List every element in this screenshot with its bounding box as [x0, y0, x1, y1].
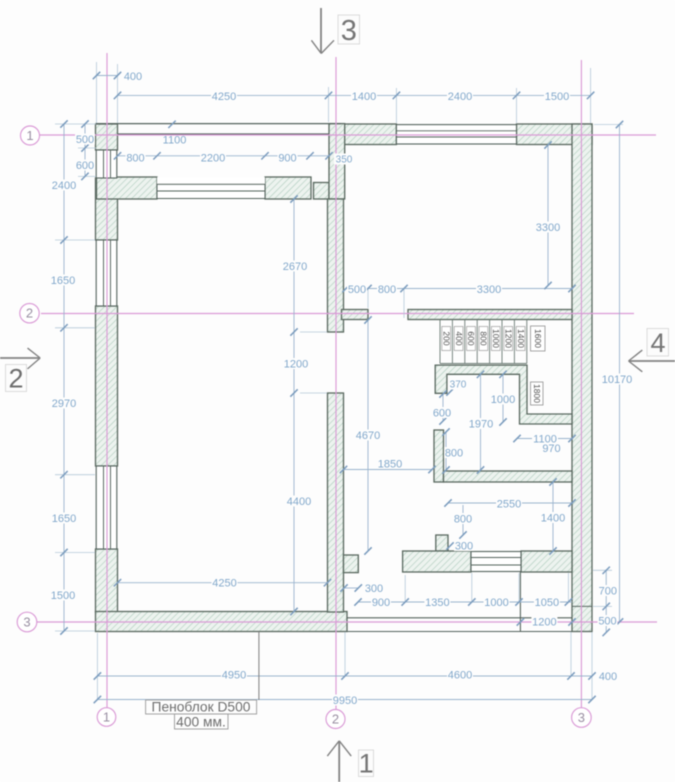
svg-text:1500: 1500 — [545, 91, 569, 103]
svg-text:300: 300 — [365, 583, 383, 595]
svg-text:2: 2 — [26, 306, 33, 321]
svg-text:800: 800 — [445, 447, 463, 459]
svg-text:1970: 1970 — [469, 418, 493, 430]
svg-text:4: 4 — [650, 328, 665, 358]
svg-text:3: 3 — [578, 710, 585, 725]
svg-text:4250: 4250 — [212, 91, 236, 103]
svg-text:500: 500 — [598, 615, 616, 627]
svg-text:2200: 2200 — [201, 153, 225, 165]
svg-text:1400: 1400 — [541, 512, 565, 524]
svg-text:1000: 1000 — [491, 394, 515, 406]
svg-text:2: 2 — [8, 364, 23, 394]
svg-text:400: 400 — [454, 331, 464, 345]
svg-text:1850: 1850 — [378, 459, 402, 471]
svg-text:800: 800 — [479, 331, 489, 345]
svg-text:3300: 3300 — [477, 284, 501, 296]
svg-text:970: 970 — [542, 443, 560, 455]
svg-text:600: 600 — [466, 331, 476, 345]
svg-text:600: 600 — [76, 160, 94, 172]
svg-text:1600: 1600 — [533, 329, 543, 348]
svg-text:700: 700 — [599, 585, 617, 597]
svg-text:300: 300 — [455, 540, 473, 552]
svg-text:2400: 2400 — [52, 180, 76, 192]
svg-text:10170: 10170 — [602, 374, 633, 386]
svg-text:1350: 1350 — [425, 597, 449, 609]
svg-text:900: 900 — [372, 597, 390, 609]
svg-text:1400: 1400 — [352, 91, 376, 103]
svg-text:4600: 4600 — [448, 669, 472, 681]
svg-text:800: 800 — [126, 153, 144, 165]
svg-text:1: 1 — [26, 128, 33, 143]
svg-text:900: 900 — [278, 153, 296, 165]
svg-text:800: 800 — [378, 284, 396, 296]
svg-text:1500: 1500 — [51, 590, 75, 602]
svg-text:1000: 1000 — [491, 329, 501, 348]
svg-text:1650: 1650 — [52, 513, 76, 525]
svg-text:500: 500 — [76, 134, 94, 146]
svg-text:1000: 1000 — [484, 597, 508, 609]
svg-text:1200: 1200 — [503, 329, 513, 348]
svg-text:350: 350 — [336, 155, 353, 166]
svg-text:2550: 2550 — [497, 498, 521, 510]
svg-text:4400: 4400 — [287, 496, 311, 508]
svg-text:600: 600 — [433, 407, 451, 419]
svg-text:370: 370 — [450, 379, 467, 390]
svg-text:1800: 1800 — [532, 384, 542, 403]
svg-text:500: 500 — [348, 284, 366, 296]
svg-text:400 мм.: 400 мм. — [176, 714, 226, 729]
svg-text:Пеноблок D500: Пеноблок D500 — [152, 699, 251, 714]
svg-text:1100: 1100 — [163, 134, 187, 146]
svg-text:9950: 9950 — [333, 695, 357, 707]
svg-text:400: 400 — [124, 71, 142, 83]
svg-text:2670: 2670 — [283, 261, 307, 273]
svg-text:4250: 4250 — [212, 578, 236, 590]
svg-text:1050: 1050 — [535, 597, 559, 609]
svg-text:1200: 1200 — [532, 616, 556, 628]
svg-text:200: 200 — [441, 331, 451, 345]
svg-text:1: 1 — [359, 749, 374, 779]
svg-text:2400: 2400 — [448, 91, 472, 103]
svg-text:3: 3 — [23, 615, 30, 630]
svg-text:1650: 1650 — [51, 275, 75, 287]
svg-text:1: 1 — [103, 710, 110, 725]
svg-text:4670: 4670 — [356, 430, 380, 442]
svg-text:2970: 2970 — [52, 398, 76, 410]
svg-text:400: 400 — [599, 671, 617, 683]
svg-text:800: 800 — [454, 513, 472, 525]
svg-text:2: 2 — [332, 712, 339, 727]
svg-text:3: 3 — [341, 15, 357, 47]
svg-text:1400: 1400 — [516, 329, 526, 348]
svg-text:4950: 4950 — [222, 669, 246, 681]
svg-text:1200: 1200 — [284, 358, 308, 370]
svg-text:3300: 3300 — [536, 222, 560, 234]
